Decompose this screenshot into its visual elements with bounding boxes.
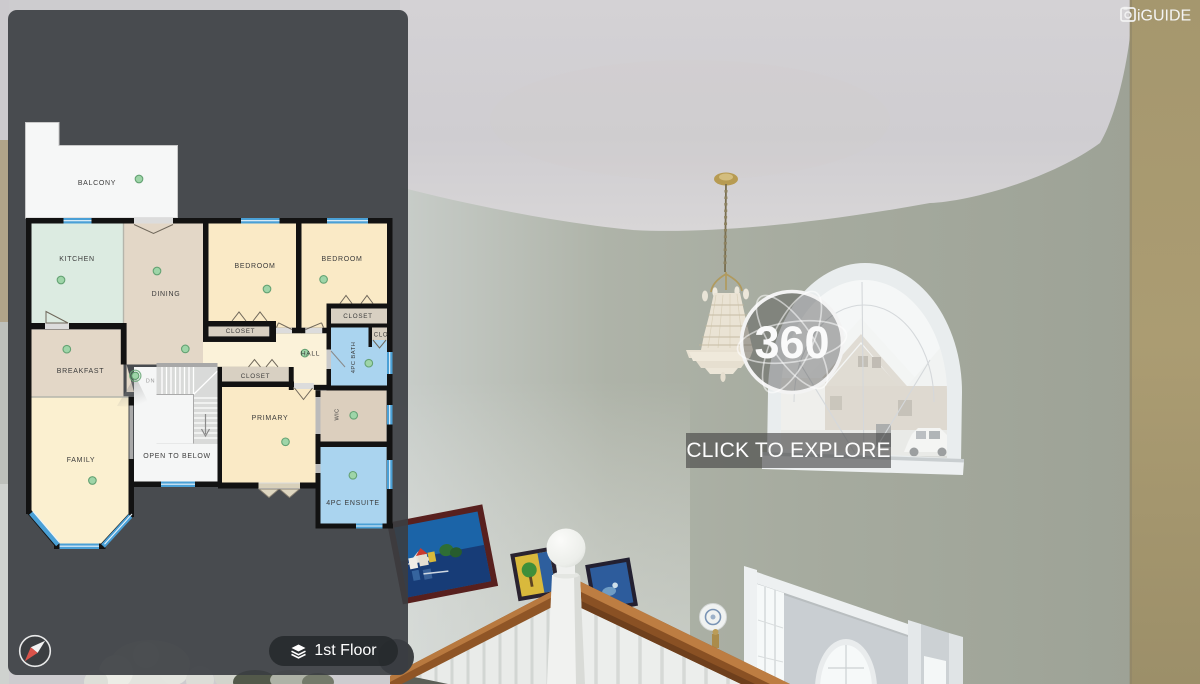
svg-text:DN: DN <box>146 379 155 385</box>
svg-text:BALCONY: BALCONY <box>78 180 116 187</box>
svg-text:KITCHEN: KITCHEN <box>59 256 95 263</box>
svg-text:BEDROOM: BEDROOM <box>321 256 362 263</box>
svg-text:BEDROOM: BEDROOM <box>234 263 275 270</box>
svg-text:WIC: WIC <box>335 408 341 420</box>
svg-text:HALL: HALL <box>301 351 320 358</box>
svg-text:4PC ENSUITE: 4PC ENSUITE <box>326 500 380 507</box>
svg-text:4PC BATH: 4PC BATH <box>351 342 357 374</box>
svg-text:CLOSET: CLOSET <box>241 373 270 380</box>
svg-text:360: 360 <box>754 317 829 368</box>
svg-text:BREAKFAST: BREAKFAST <box>57 368 105 375</box>
svg-text:OPEN TO BELOW: OPEN TO BELOW <box>143 453 211 460</box>
svg-text:CLOSET: CLOSET <box>343 313 372 320</box>
svg-text:PRIMARY: PRIMARY <box>252 415 289 422</box>
svg-text:CLO: CLO <box>374 333 388 339</box>
svg-text:FAMILY: FAMILY <box>67 457 96 464</box>
svg-text:CLOSET: CLOSET <box>226 328 255 335</box>
svg-text:DINING: DINING <box>152 291 181 298</box>
svg-text:iGUIDE: iGUIDE <box>1137 8 1191 25</box>
